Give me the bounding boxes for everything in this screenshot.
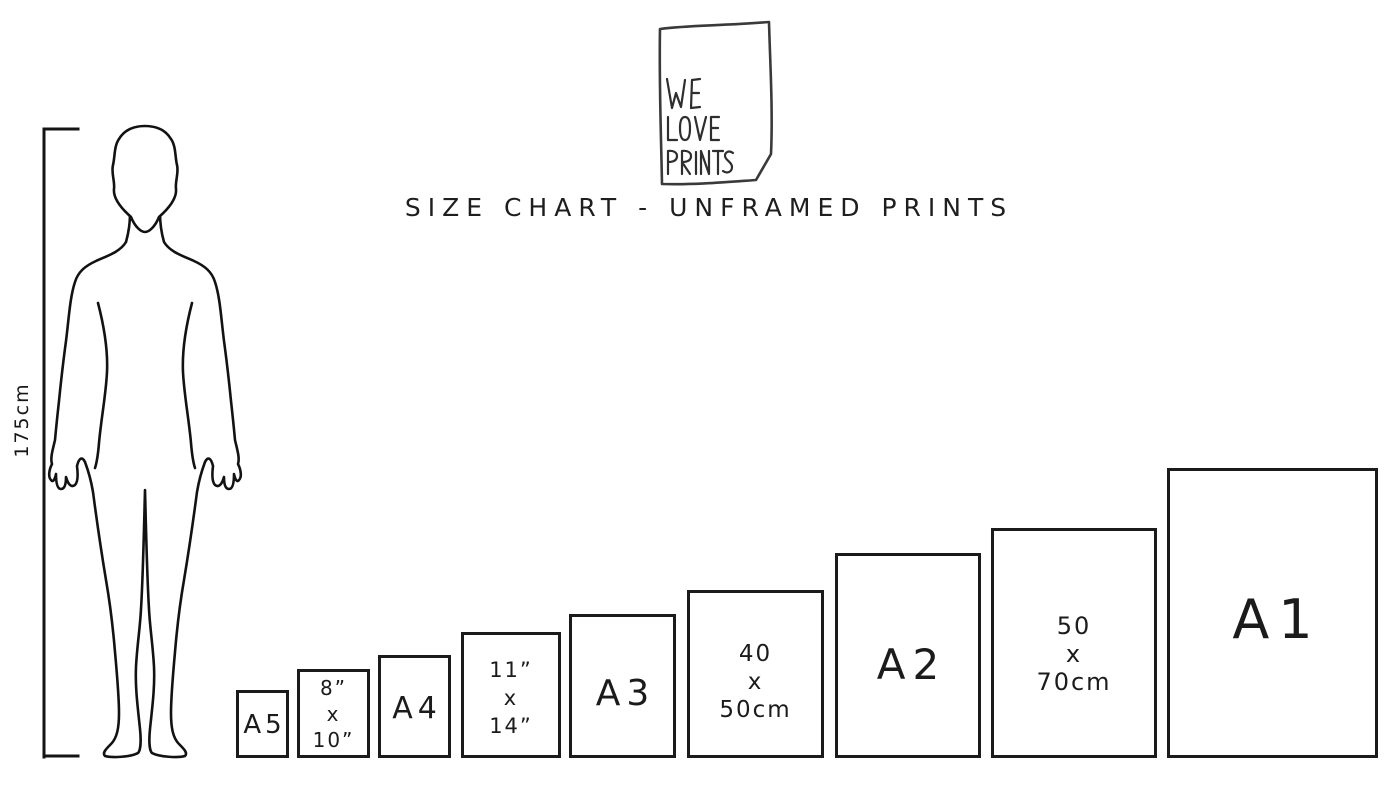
size-label-line: 50 (1057, 612, 1092, 640)
size-label-line: x (504, 684, 518, 712)
size-box-11x14: 11” x 14” (461, 632, 561, 758)
figure-body-outline (49, 213, 241, 757)
size-label: A5 (243, 710, 285, 740)
size-box-a1: A1 (1167, 468, 1378, 758)
logo (660, 22, 772, 184)
size-box-a2: A2 (835, 553, 981, 758)
size-label-line: 8” (320, 675, 347, 701)
size-label-line: 10” (313, 727, 355, 753)
size-label: A1 (1232, 588, 1321, 651)
size-label-line: 14” (489, 712, 533, 740)
size-label: A2 (877, 640, 946, 689)
size-label-line: 40 (739, 640, 772, 668)
size-label-line: 70cm (1036, 668, 1111, 696)
size-box-8x10: 8” x 10” (297, 669, 370, 758)
size-box-50x70: 50 x 70cm (991, 528, 1157, 758)
figure-height-label: 175cm (11, 340, 41, 500)
size-box-a3: A3 (569, 614, 676, 758)
size-box-a4: A4 (378, 655, 451, 758)
size-label-line: 50cm (719, 696, 791, 724)
size-box-40x50: 40 x 50cm (687, 590, 824, 758)
size-label: A4 (392, 691, 442, 726)
size-chart-page: { "logo": { "line1": "WE", "line2": "LOV… (0, 0, 1400, 787)
size-label-line: x (327, 701, 341, 727)
page-title: SIZE CHART - UNFRAMED PRINTS (9, 193, 1400, 222)
size-box-a5: A5 (236, 690, 289, 758)
size-label-line: 11” (489, 656, 533, 684)
size-label: A3 (596, 673, 656, 714)
size-label-line: x (748, 668, 764, 696)
size-label-line: x (1066, 640, 1082, 668)
